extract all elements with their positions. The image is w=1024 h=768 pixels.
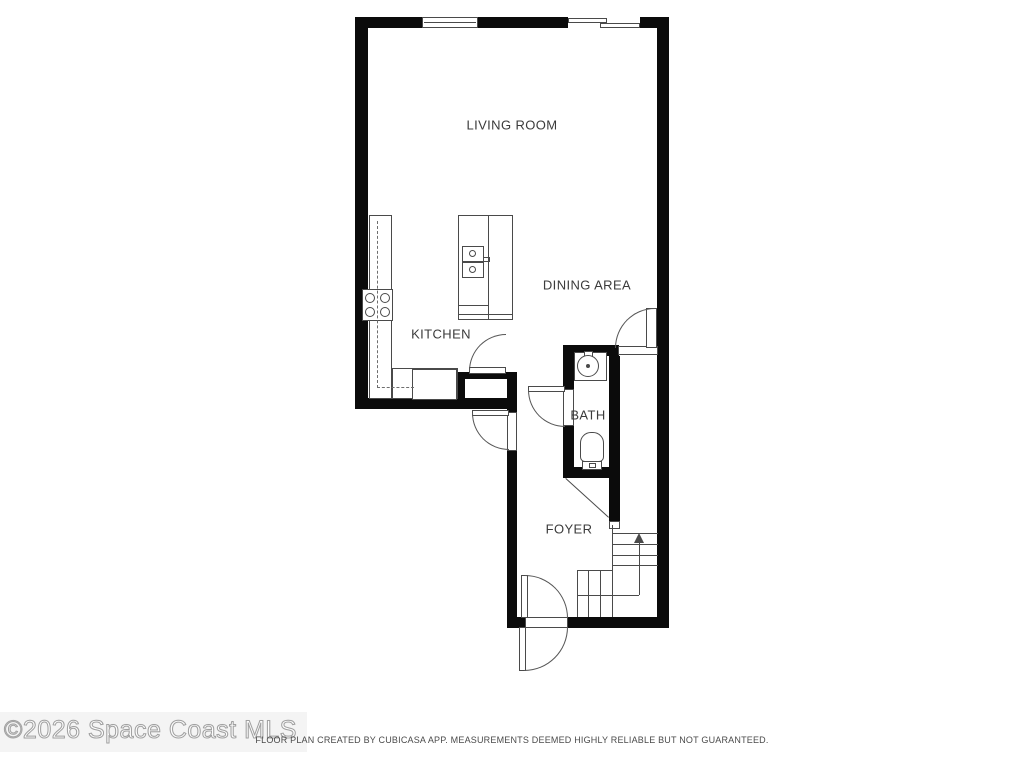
bath-label: BATH	[570, 408, 605, 423]
island-divider	[488, 215, 489, 320]
kitchen-label: KITCHEN	[411, 327, 471, 342]
dishwasher	[412, 369, 457, 400]
footer-disclaimer: FLOOR PLAN CREATED BY CUBICASA APP. MEAS…	[255, 735, 768, 745]
watermark-text: ©2026 Space Coast MLS	[0, 712, 307, 752]
stair-corner	[577, 570, 613, 571]
sink-drain-1	[469, 250, 476, 257]
slider-panel-2	[600, 23, 640, 28]
stair-tread-2	[612, 544, 658, 545]
stair-walkline-v	[639, 543, 640, 595]
entry-swing-outer	[524, 627, 568, 671]
foyer-label: FOYER	[546, 522, 593, 537]
dining-area-label: DINING AREA	[543, 278, 631, 293]
side-door-swing	[472, 413, 509, 450]
entry-swing-inner	[525, 575, 568, 618]
window-mullion	[424, 22, 476, 23]
stair-wall-end-cap	[609, 521, 620, 529]
stair-tread-v2	[588, 570, 589, 617]
toilet-bowl	[580, 432, 604, 462]
burner-3	[365, 307, 375, 317]
toilet-button	[589, 463, 596, 468]
floorplan-image: ©2026 Space Coast MLS FLOOR PLAN CREATED…	[0, 0, 1024, 768]
stair-up-arrow	[634, 533, 644, 543]
wall-top-mid	[478, 17, 568, 28]
pantry-door-swing	[469, 334, 506, 371]
bath-door-swing	[528, 390, 565, 427]
burner-4	[380, 307, 390, 317]
stair-walkline-h	[577, 595, 639, 596]
sink-drain-2	[469, 266, 476, 273]
stair-tread-v1	[577, 570, 578, 617]
dining-door-swing	[615, 308, 655, 348]
stair-tread-v3	[600, 570, 601, 617]
wall-foyer-west-upper	[507, 372, 517, 413]
living-room-label: LIVING ROOM	[466, 118, 557, 133]
stair-open-edge	[612, 525, 613, 617]
island-shelf-1	[458, 305, 488, 306]
wall-right	[657, 17, 669, 628]
wall-closet-left	[457, 372, 465, 409]
stair-tread-3	[612, 555, 658, 556]
wall-bath-east	[609, 356, 620, 522]
wall-bottom-right	[567, 617, 669, 628]
burner-2	[380, 293, 390, 303]
bath-sink-drain	[586, 364, 590, 368]
upper-cabinet-v	[377, 221, 378, 388]
wall-foyer-west-lower	[507, 450, 517, 628]
stair-tread-4	[612, 565, 658, 566]
understair-line	[565, 478, 609, 518]
burner-1	[365, 293, 375, 303]
upper-cabinet-h	[377, 387, 414, 388]
island-shelf-2	[458, 314, 513, 315]
wall-bath-west-upper	[563, 345, 574, 389]
wall-left	[355, 17, 368, 409]
